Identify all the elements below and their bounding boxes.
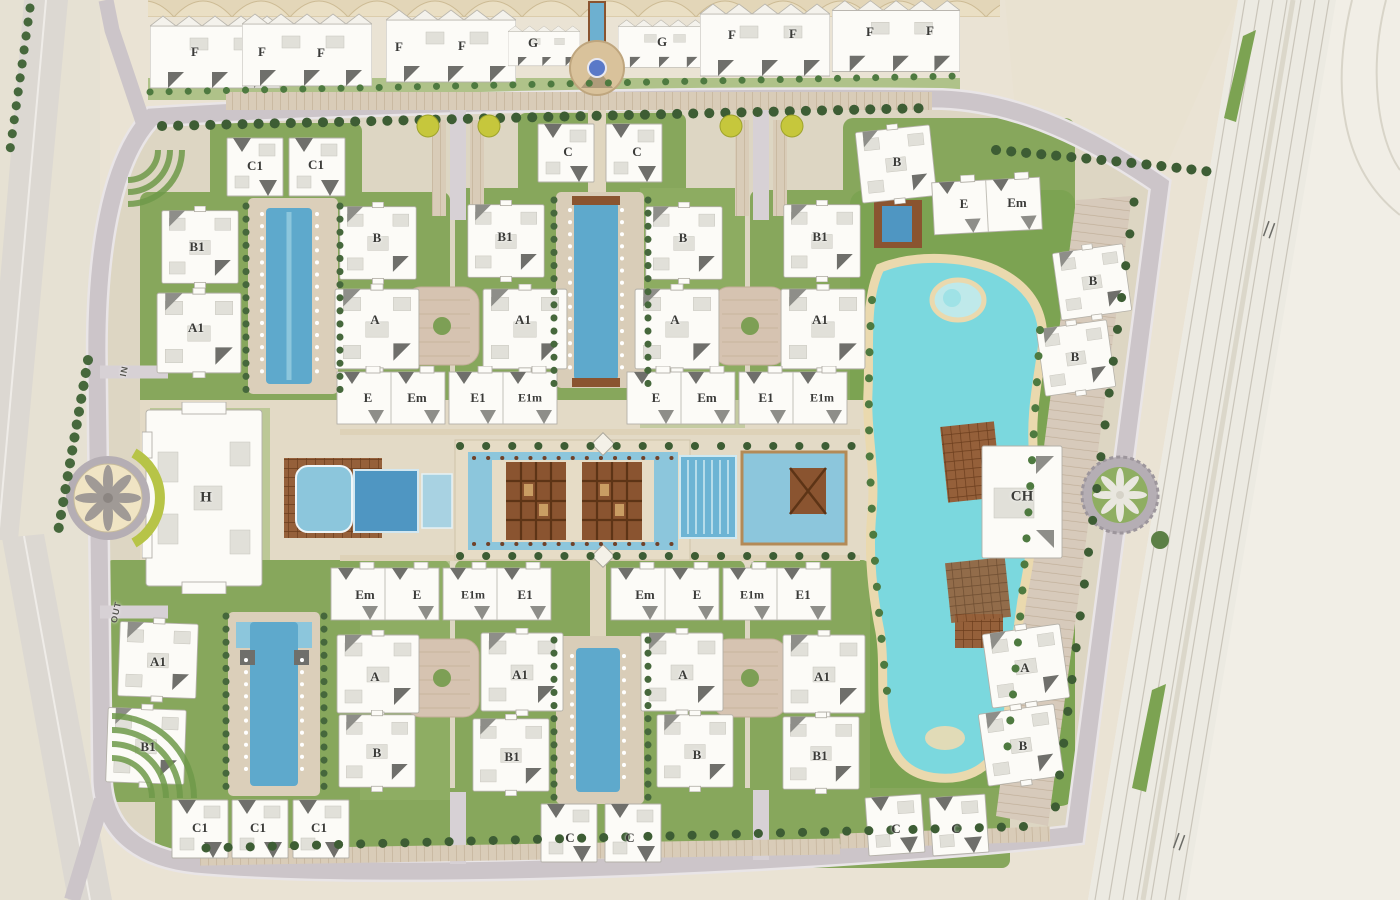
master-plan-stage: FFFFFGGFFFFC1C1CCBEEmB1BB1BB1BA1AA1AA1BE… <box>0 0 1400 900</box>
scene-svg <box>0 0 1400 900</box>
clubhouse-building <box>982 446 1062 558</box>
fountain-icon <box>588 59 606 77</box>
